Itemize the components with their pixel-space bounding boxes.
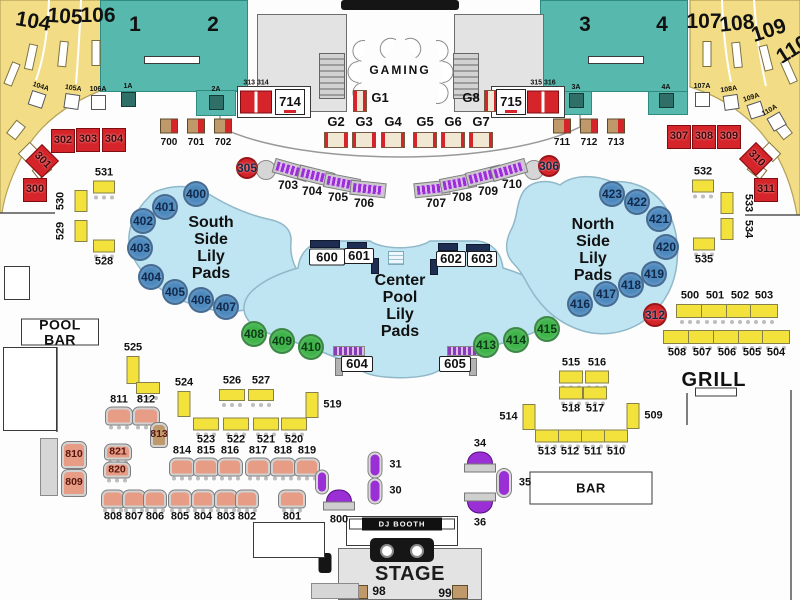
redbox-307-label: 307	[670, 131, 688, 143]
stable-813-label: 813	[150, 429, 168, 440]
ytable-505-label: 505	[743, 348, 761, 359]
center-pool-label: Center Pool Lily Pads	[395, 302, 405, 312]
stable-821-label: 821	[109, 447, 127, 458]
label-705-label: 705	[328, 191, 348, 204]
stable-809[interactable]: 809	[62, 470, 86, 496]
lily-pad-418[interactable]: 418	[618, 272, 644, 298]
stable-804-label: 804	[194, 511, 212, 522]
ytable-510-label: 510	[607, 446, 625, 457]
redbox-301-label: 301	[31, 150, 52, 171]
ytable-524[interactable]	[178, 391, 191, 417]
label-710-label: 710	[502, 178, 522, 191]
daybed-600-label: 600	[316, 250, 338, 264]
ytable-515[interactable]	[559, 371, 583, 384]
lily-pad-417-label: 417	[596, 288, 616, 301]
label-g2: G2	[331, 117, 341, 127]
stable-811[interactable]	[106, 408, 132, 425]
gaming-table-g7[interactable]	[469, 132, 493, 148]
seat-4a-label: 4A	[662, 84, 671, 91]
lily-pad-406[interactable]: 406	[188, 287, 214, 313]
stable-801-label: 801	[283, 511, 301, 522]
stable-819-label: 819	[298, 445, 316, 456]
stable-812-label: 812	[137, 394, 155, 405]
ytable-503[interactable]	[750, 304, 778, 318]
structure-left	[3, 347, 57, 431]
ytable-516-label: 516	[588, 357, 606, 368]
redbox-304-label: 304	[105, 134, 123, 146]
lily-pad-410[interactable]: 410	[298, 334, 324, 360]
daybed-604[interactable]: 604	[341, 356, 373, 372]
stable-802[interactable]	[236, 491, 258, 508]
booth-715-label: 715	[500, 95, 522, 109]
ytable-528[interactable]	[93, 240, 115, 253]
lily-pad-400[interactable]: 400	[183, 181, 209, 207]
ytable-529[interactable]	[75, 220, 88, 242]
lily-pad-408[interactable]: 408	[241, 321, 267, 347]
lily-pad-407-label: 407	[216, 301, 236, 314]
table-36-label: 36	[474, 517, 486, 528]
section-2-label: 2	[207, 14, 219, 36]
lily-pad-416-label: 416	[570, 298, 590, 311]
seat-2a-label: 2A	[212, 86, 221, 93]
lily-pad-418-label: 418	[621, 279, 641, 292]
label-g5-label: G5	[416, 115, 433, 129]
lily-pad-421[interactable]: 421	[646, 206, 672, 232]
couch-31-label: 31	[389, 460, 401, 471]
stable-802-label: 802	[238, 511, 256, 522]
section-106-label: 106	[80, 5, 115, 27]
walkway-structure	[253, 522, 325, 558]
couch-35-label: 35	[519, 478, 531, 489]
cabana-712-label: 712	[581, 138, 598, 148]
ytable-501[interactable]	[701, 304, 729, 318]
ytable-506-label: 506	[718, 348, 736, 359]
stable-804[interactable]	[192, 491, 214, 508]
section-4[interactable]: 4	[642, 14, 682, 36]
label-g6-label: G6	[444, 115, 461, 129]
ytable-504[interactable]	[762, 330, 790, 344]
seat-108a[interactable]: 108A	[720, 85, 739, 111]
lily-pad-414-label: 414	[506, 334, 526, 347]
gaming-table-g3[interactable]	[352, 132, 376, 148]
ytable-528-label: 528	[95, 256, 113, 267]
label-708-label: 708	[452, 191, 472, 204]
stable-811-label: 811	[110, 394, 128, 405]
bar: BAR	[530, 472, 653, 505]
pool-steps	[388, 251, 404, 265]
ytable-513[interactable]	[535, 430, 559, 443]
table-34[interactable]	[465, 452, 495, 473]
lily-pad-400-label: 400	[186, 188, 206, 201]
ytable-525-label: 525	[124, 343, 142, 354]
label-703: 703	[283, 180, 293, 190]
ytable-526-label: 526	[223, 376, 241, 387]
lily-pad-410-label: 410	[301, 341, 321, 354]
lily-pad-422[interactable]: 422	[624, 189, 650, 215]
table-34-label: 34	[474, 438, 486, 449]
ytable-518-label: 518	[562, 403, 580, 414]
redbox-304[interactable]: 304	[102, 128, 126, 152]
redbox-303[interactable]: 303	[76, 128, 100, 152]
label-g1-label: G1	[371, 91, 388, 105]
cabana-712[interactable]	[580, 119, 598, 134]
ytable-534-label: 534	[742, 220, 753, 238]
label-705: 705	[333, 192, 343, 202]
gaming-table-g5[interactable]	[413, 132, 437, 148]
cabana-700-label: 700	[161, 138, 178, 148]
stable-806-label: 806	[146, 511, 164, 522]
table-36[interactable]	[465, 493, 495, 514]
cabana-713[interactable]	[607, 119, 625, 134]
lily-pad-414[interactable]: 414	[503, 327, 529, 353]
navy-57	[438, 243, 458, 251]
shelving-left	[40, 438, 58, 496]
lily-pad-423-label: 423	[602, 188, 622, 201]
ytable-530-label: 530	[55, 192, 66, 210]
stage-label: STAGE	[375, 564, 445, 585]
redbox-311-label: 311	[757, 184, 775, 196]
redbox-300-label: 300	[26, 184, 44, 196]
ytable-531-label: 531	[95, 167, 113, 178]
cabana-711-label: 711	[554, 138, 570, 148]
label-g3-label: G3	[355, 115, 372, 129]
lily-pad-420-label: 420	[656, 241, 676, 254]
redbox-308-label: 308	[695, 131, 713, 143]
label-g4-label: G4	[384, 115, 401, 129]
stable-803-label: 803	[217, 511, 235, 522]
booth-714-label: 714	[279, 95, 301, 109]
stage-mark-98-label: 98	[372, 585, 385, 598]
section-3-label: 3	[579, 14, 591, 36]
lily-pad-415-label: 415	[537, 323, 557, 336]
daybed-602[interactable]: 602	[436, 251, 466, 267]
south-pool-label: South Side Lily Pads	[206, 244, 216, 254]
dj-speaker-left	[349, 519, 363, 530]
ytable-532-label: 532	[694, 166, 712, 177]
ytable-501-label: 501	[706, 291, 724, 302]
lily-pad-413-label: 413	[476, 339, 496, 352]
lily-pad-404[interactable]: 404	[138, 264, 164, 290]
spot-306[interactable]: 306	[538, 155, 560, 177]
lily-pad-403-label: 403	[130, 242, 150, 255]
label-707-label: 707	[426, 197, 446, 210]
ytable-526[interactable]	[219, 389, 245, 401]
seat-3a-label: 3A	[572, 84, 581, 91]
daybed-605-label: 605	[444, 357, 466, 371]
label-g4: G4	[388, 117, 398, 127]
navy-54	[310, 240, 340, 248]
dj-booth-label: DJ BOOTH	[379, 520, 426, 528]
redbox-302-label: 302	[54, 135, 72, 147]
ytable-523[interactable]	[193, 418, 219, 431]
stable-814[interactable]	[170, 459, 194, 476]
seat-106a-label: 106A	[90, 86, 107, 93]
redbox-303-label: 303	[79, 134, 97, 146]
lily-pad-419[interactable]: 419	[641, 261, 667, 287]
redbox-310-label: 310	[745, 148, 766, 169]
seat-105a[interactable]: 105A	[62, 84, 81, 110]
dj-booth: DJ BOOTH	[362, 518, 442, 531]
ytable-525[interactable]	[127, 356, 140, 384]
cabana-701[interactable]	[187, 119, 205, 134]
section-3[interactable]: 3	[565, 14, 605, 36]
gaming-label: GAMING	[395, 65, 405, 75]
ytable-508[interactable]	[663, 330, 691, 344]
booth-315-316-label: 315 316	[530, 79, 555, 86]
grill-label: GRILL	[709, 375, 719, 385]
ytable-509-label: 509	[644, 411, 662, 422]
seat-3a[interactable]: 3A	[568, 84, 584, 108]
stable-813[interactable]: 813	[151, 423, 167, 447]
redbox-309[interactable]: 309	[717, 125, 741, 149]
structure-left-small	[4, 266, 30, 300]
stable-805-label: 805	[171, 511, 189, 522]
daybed-601[interactable]: 601	[344, 248, 374, 264]
booth-313-314-label: 313 314	[243, 79, 268, 86]
stable-807[interactable]	[123, 491, 145, 508]
label-g5: G5	[420, 117, 430, 127]
lily-pad-419-label: 419	[644, 268, 664, 281]
center-pool-label-label: Center Pool Lily Pads	[375, 273, 426, 340]
stable-803[interactable]	[215, 491, 237, 508]
lily-pad-408-label: 408	[244, 328, 264, 341]
ytable-511[interactable]	[581, 430, 605, 443]
booth-715[interactable]: 715	[496, 89, 526, 115]
label-708: 708	[457, 192, 467, 202]
ytable-514[interactable]	[523, 404, 536, 430]
lily-pad-409[interactable]: 409	[269, 328, 295, 354]
redbox-307[interactable]: 307	[667, 125, 691, 149]
stable-801[interactable]	[279, 491, 305, 508]
redbox-300[interactable]: 300	[23, 178, 47, 202]
stable-815[interactable]	[194, 459, 218, 476]
marquee	[341, 0, 459, 10]
ytable-516[interactable]	[585, 371, 609, 384]
stable-807-label: 807	[125, 511, 143, 522]
lily-pad-405[interactable]: 405	[162, 279, 188, 305]
seat-107a[interactable]: 107A	[694, 83, 710, 107]
label-706-label: 706	[354, 197, 374, 210]
ytable-531[interactable]	[93, 181, 115, 194]
seat-106a[interactable]: 106A	[90, 86, 106, 110]
lily-pad-415[interactable]: 415	[534, 316, 560, 342]
stage-side-shelf	[311, 583, 359, 599]
ytable-524-label: 524	[175, 378, 193, 389]
lily-pad-401-label: 401	[155, 201, 175, 214]
section-106[interactable]: 106	[78, 5, 118, 27]
pool-bar-label: POOL BAR	[22, 317, 98, 346]
stable-809-label: 809	[65, 477, 83, 488]
ytable-507-label: 507	[693, 348, 711, 359]
ytable-534[interactable]	[721, 218, 734, 240]
daybed-604-label: 604	[346, 357, 368, 371]
booth-313-314[interactable]	[240, 91, 272, 114]
booth-714[interactable]: 714	[275, 89, 305, 115]
seat-107a-label: 107A	[694, 83, 711, 90]
label-709-label: 709	[478, 185, 498, 198]
seat-1a-label: 1A	[124, 83, 133, 90]
seat-4a[interactable]: 4A	[658, 84, 674, 108]
ytable-533-label: 533	[742, 194, 753, 212]
redbox-311[interactable]: 311	[754, 178, 778, 202]
daybed-603[interactable]: 603	[467, 251, 497, 267]
couch-30[interactable]	[369, 479, 382, 504]
ytable-535[interactable]	[693, 238, 715, 251]
lily-pad-423[interactable]: 423	[599, 181, 625, 207]
ytable-509[interactable]	[627, 403, 640, 429]
label-709: 709	[483, 186, 493, 196]
ytable-519[interactable]	[306, 392, 319, 418]
ytable-521[interactable]	[253, 418, 279, 431]
label-704: 704	[307, 186, 317, 196]
label-g1: G1	[375, 93, 385, 103]
ytable-529-label: 529	[55, 222, 66, 240]
gaming-label-label: GAMING	[369, 64, 430, 77]
stage-mark-98: 98	[374, 586, 384, 596]
spot-306-label: 306	[539, 160, 559, 173]
label-g7-label: G7	[472, 115, 489, 129]
stable-818-label: 818	[274, 445, 292, 456]
fanseat-47	[703, 41, 712, 67]
ytable-520[interactable]	[281, 418, 307, 431]
label-g6: G6	[448, 117, 458, 127]
ytable-518[interactable]	[559, 387, 583, 400]
ytable-506[interactable]	[713, 330, 741, 344]
fanseat-42	[92, 40, 101, 66]
north-pool-label: North Side Lily Pads	[588, 246, 598, 256]
stable-812[interactable]	[133, 408, 159, 425]
stable-816[interactable]	[218, 459, 242, 476]
ytable-530[interactable]	[75, 190, 88, 212]
lily-pad-406-label: 406	[191, 294, 211, 307]
bar-label: BAR	[576, 481, 606, 495]
redbox-308[interactable]: 308	[692, 125, 716, 149]
cabana-702[interactable]	[214, 119, 232, 134]
gaming-table-g2[interactable]	[324, 132, 348, 148]
cabana-702-label: 702	[215, 138, 232, 148]
gaming-table-g1[interactable]	[353, 90, 367, 112]
booth-315-316[interactable]	[527, 91, 559, 114]
stable-808[interactable]	[102, 491, 124, 508]
lily-pad-405-label: 405	[165, 286, 185, 299]
spot-305-label: 305	[237, 162, 257, 175]
label-g2-label: G2	[327, 115, 344, 129]
ytable-527[interactable]	[248, 389, 274, 401]
daybed-602-label: 602	[440, 252, 462, 266]
lily-pad-421-label: 421	[649, 213, 669, 226]
lily-pad-416[interactable]: 416	[567, 291, 593, 317]
lily-pad-417[interactable]: 417	[593, 281, 619, 307]
ytable-500[interactable]	[676, 304, 704, 318]
lily-pad-403[interactable]: 403	[127, 235, 153, 261]
stable-821[interactable]: 821	[105, 445, 131, 460]
vip-bench-right	[588, 56, 644, 64]
stable-818[interactable]	[271, 459, 295, 476]
spot-312[interactable]: 312	[643, 303, 667, 327]
couch-30-label: 30	[389, 486, 401, 497]
couch-31[interactable]	[369, 453, 382, 478]
couch-35[interactable]	[497, 469, 511, 497]
ytable-504-label: 504	[767, 348, 785, 359]
ytable-500-label: 500	[681, 291, 699, 302]
ytable-503-label: 503	[755, 291, 773, 302]
section-1-label: 1	[129, 14, 141, 36]
seat-2a[interactable]: 2A	[208, 86, 224, 110]
label-g8: G8	[466, 93, 476, 103]
ytable-532[interactable]	[692, 180, 714, 193]
stage-speaker-right	[452, 585, 468, 599]
ytable-515-label: 515	[562, 357, 580, 368]
ytable-533[interactable]	[721, 192, 734, 214]
cabana-700[interactable]	[160, 119, 178, 134]
redbox-302[interactable]: 302	[51, 129, 75, 153]
ytable-522[interactable]	[223, 418, 249, 431]
table-800[interactable]	[324, 490, 354, 511]
lily-pad-402[interactable]: 402	[130, 208, 156, 234]
lily-pad-420[interactable]: 420	[653, 234, 679, 260]
vip-bench-left	[144, 56, 200, 64]
stable-810[interactable]: 810	[62, 442, 86, 468]
ytable-512-label: 512	[561, 446, 579, 457]
ytable-512[interactable]	[558, 430, 582, 443]
gaming-table-g4[interactable]	[381, 132, 405, 148]
gaming-table-g6[interactable]	[441, 132, 465, 148]
ytable-510[interactable]	[604, 430, 628, 443]
stable-817[interactable]	[246, 459, 270, 476]
ytable-535-label: 535	[695, 254, 713, 265]
seat-1a[interactable]: 1A	[120, 83, 136, 107]
spot-305[interactable]: 305	[236, 157, 258, 179]
label-707: 707	[431, 198, 441, 208]
ytable-517-label: 517	[586, 403, 604, 414]
label-704-label: 704	[302, 185, 322, 198]
pool-bar: POOL BAR	[21, 319, 99, 346]
ytable-517[interactable]	[583, 387, 607, 400]
lily-pad-409-label: 409	[272, 335, 292, 348]
lily-pad-401[interactable]: 401	[152, 194, 178, 220]
daybed-600[interactable]: 600	[309, 249, 345, 266]
label-g3: G3	[359, 117, 369, 127]
spot-312-label: 312	[645, 309, 665, 322]
stable-810-label: 810	[65, 449, 83, 460]
stable-817-label: 817	[249, 445, 267, 456]
stable-814-label: 814	[173, 445, 191, 456]
ytable-507[interactable]	[688, 330, 716, 344]
label-g7: G7	[476, 117, 486, 127]
cabana-711[interactable]	[553, 119, 571, 134]
ytable-519-label: 519	[323, 400, 341, 411]
stairs-left	[319, 53, 345, 99]
section-4-label: 4	[656, 14, 668, 36]
cabana-713-label: 713	[608, 138, 625, 148]
label-706: 706	[359, 198, 369, 208]
stable-805[interactable]	[169, 491, 191, 508]
lily-pad-407[interactable]: 407	[213, 294, 239, 320]
daybed-605[interactable]: 605	[439, 356, 471, 372]
stable-820[interactable]: 820	[104, 463, 130, 478]
stable-819[interactable]	[295, 459, 319, 476]
stable-815-label: 815	[197, 445, 215, 456]
section-2[interactable]: 2	[193, 14, 233, 36]
stable-806[interactable]	[144, 491, 166, 508]
dj-speaker-right	[441, 519, 455, 530]
stable-816-label: 816	[221, 445, 239, 456]
section-1[interactable]: 1	[115, 14, 155, 36]
south-pool-label-label: South Side Lily Pads	[188, 215, 233, 282]
stable-820-label: 820	[108, 465, 126, 476]
label-703-label: 703	[278, 179, 298, 192]
lily-pad-413[interactable]: 413	[473, 332, 499, 358]
